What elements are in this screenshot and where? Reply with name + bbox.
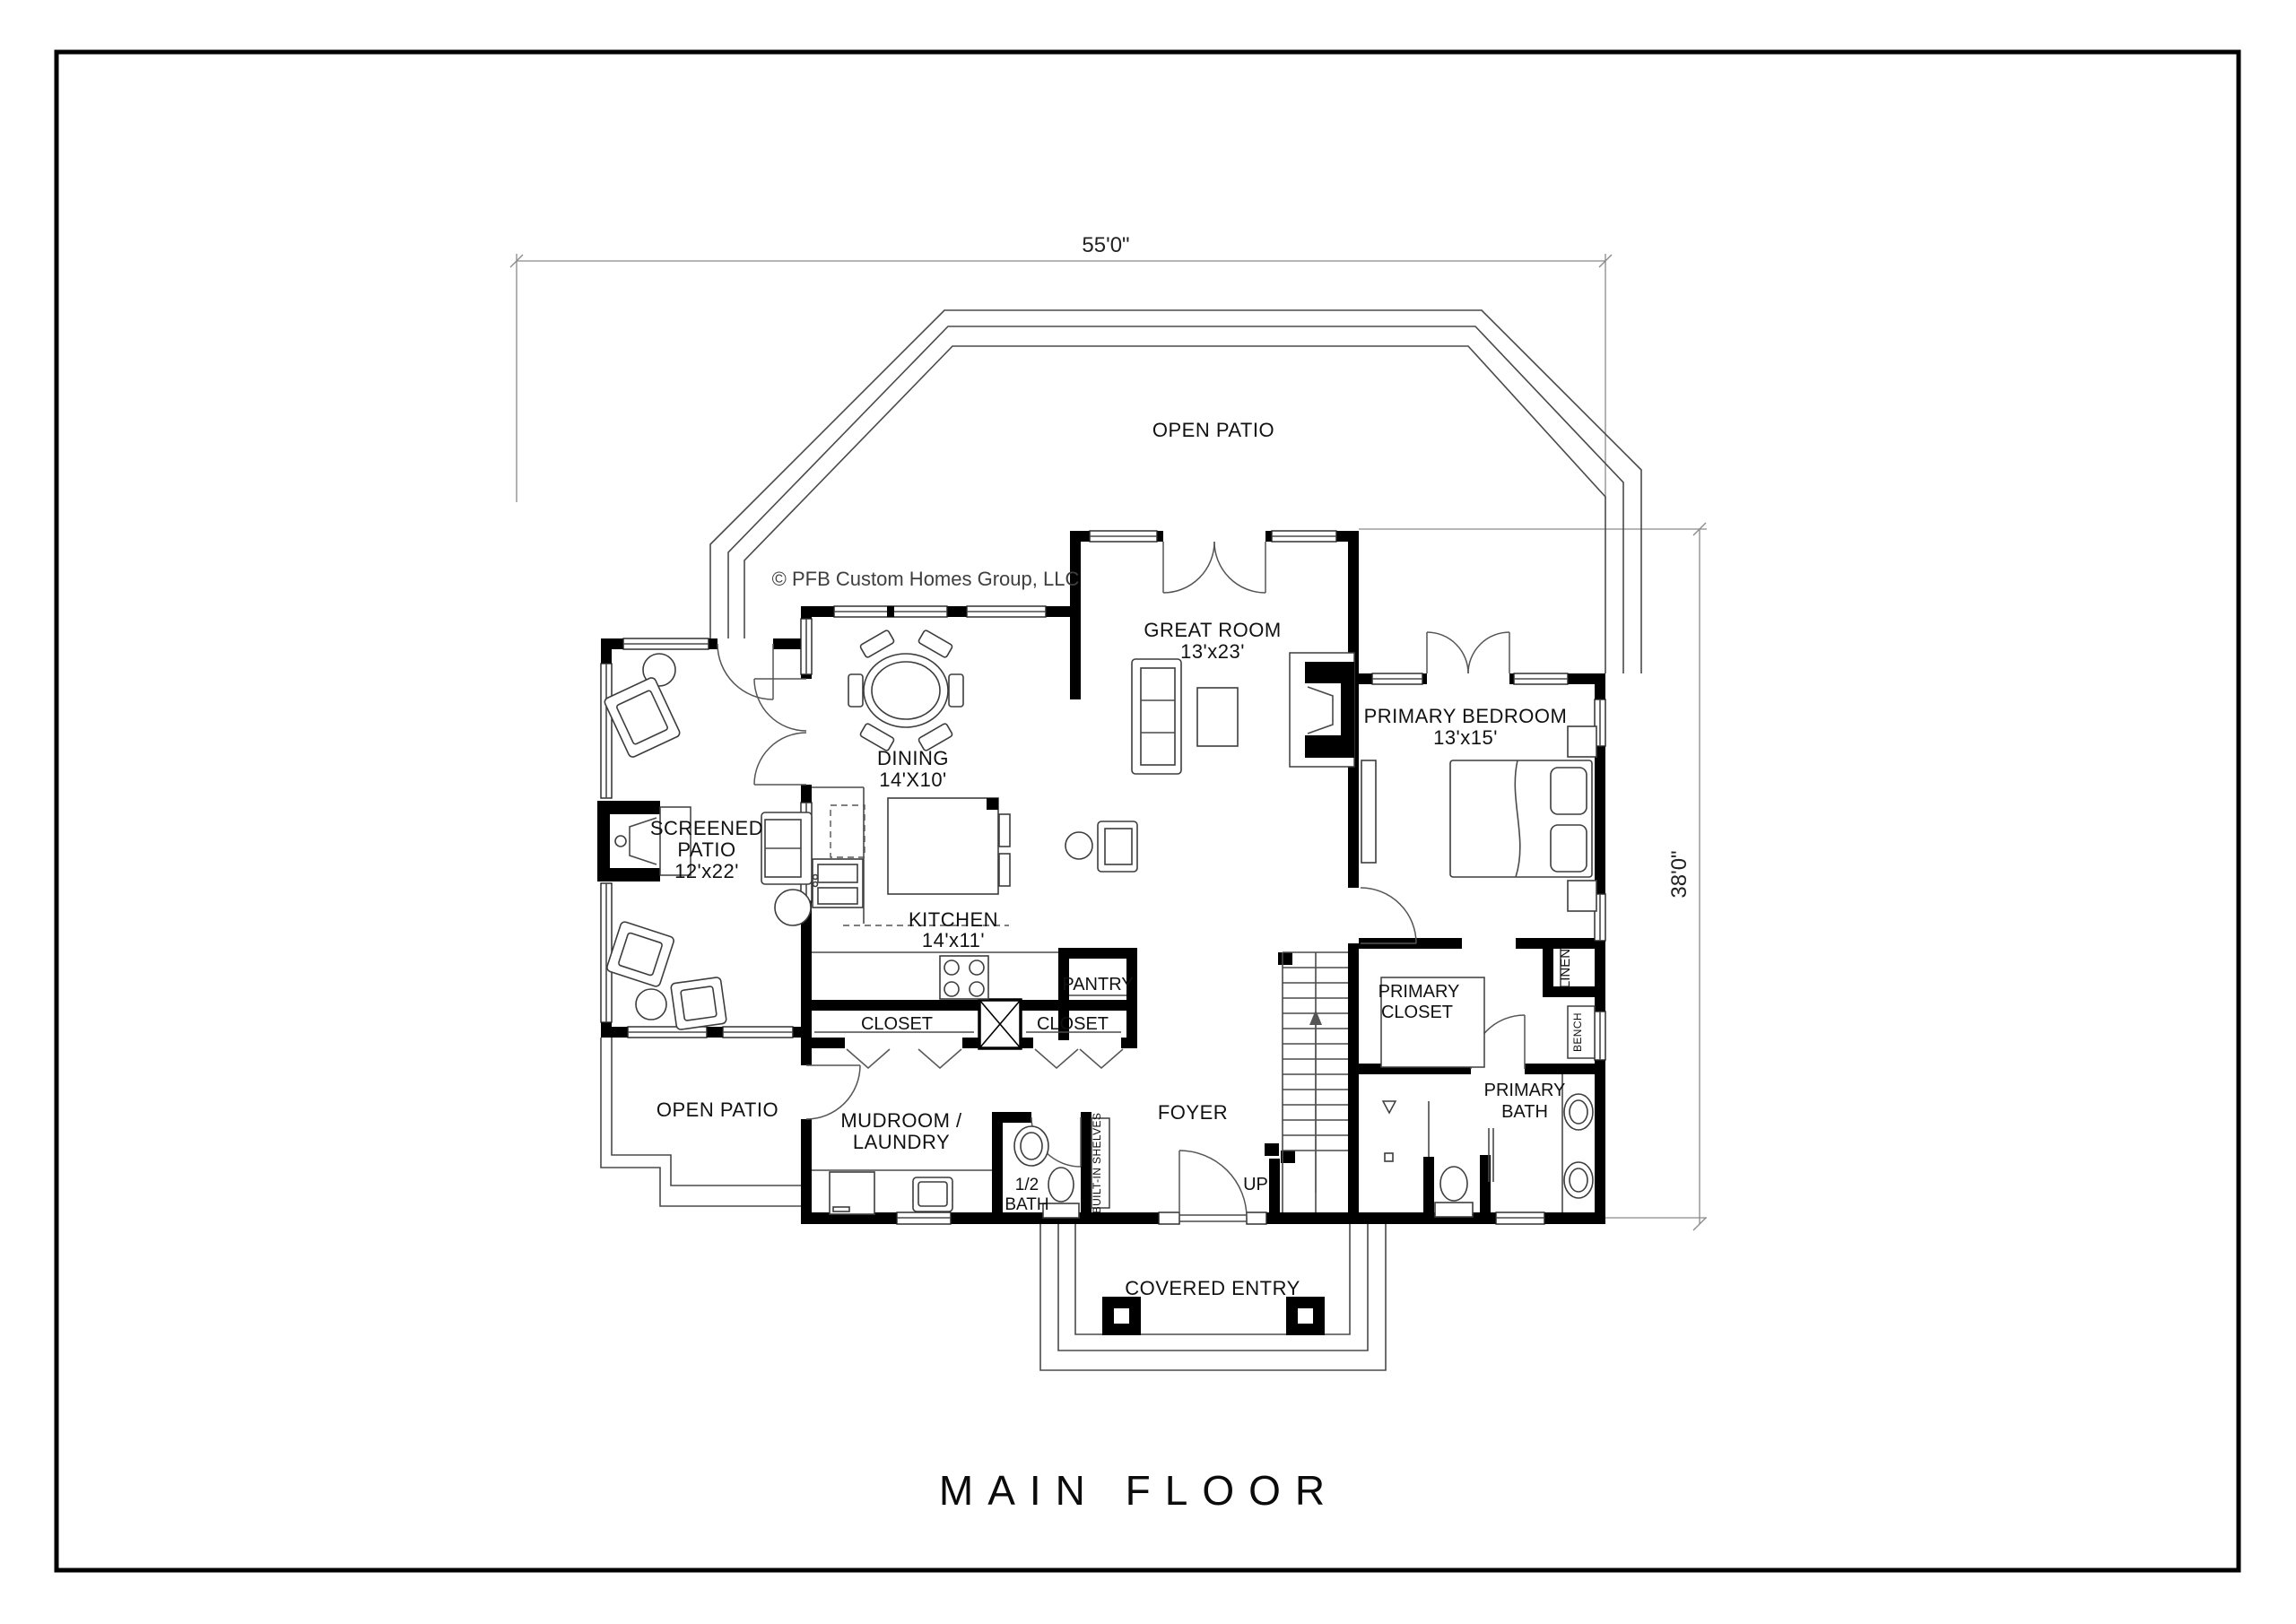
screened-patio-label-2: PATIO — [677, 838, 735, 861]
half-bath-label-2: BATH — [1004, 1195, 1048, 1214]
dining-label: DINING — [877, 747, 949, 769]
sheet-border — [57, 52, 2239, 1570]
built-in-shelves-label: BUILT-IN SHELVES — [1091, 1113, 1103, 1214]
labels: © PFB Custom Homes Group, LLC OPEN PATIO… — [650, 419, 1584, 1514]
half-bath-label-1: 1/2 — [1015, 1176, 1039, 1194]
sheet-title: MAIN FLOOR — [939, 1467, 1339, 1514]
stairs — [1283, 952, 1348, 1212]
depth-dimension: 38'0" — [1667, 850, 1692, 898]
chase-and-shelving — [814, 949, 1595, 1212]
primary-bedroom-size: 13'x15' — [1433, 726, 1498, 749]
great-room-size: 13'x23' — [1180, 640, 1245, 663]
primary-closet-label-2: CLOSET — [1381, 1003, 1453, 1022]
linen-label: LINEN — [1558, 949, 1573, 988]
closet-right-label: CLOSET — [1037, 1014, 1109, 1034]
primary-bath-label-1: PRIMARY — [1484, 1081, 1566, 1100]
screened-patio-size: 12'x22' — [674, 860, 739, 882]
great-room-label: GREAT ROOM — [1144, 619, 1281, 641]
kitchen-label: KITCHEN — [909, 908, 998, 931]
screened-patio-label-1: SCREENED — [650, 817, 763, 839]
foyer-label: FOYER — [1158, 1101, 1228, 1124]
lower-open-patio-outline — [601, 1038, 801, 1206]
copyright-note: © PFB Custom Homes Group, LLC — [772, 568, 1080, 590]
bench-label: BENCH — [1571, 1012, 1584, 1052]
pantry-label: PANTRY — [1062, 975, 1133, 994]
covered-entry-label: COVERED ENTRY — [1125, 1277, 1300, 1299]
closet-left-label: CLOSET — [861, 1014, 933, 1034]
dining-size: 14'X10' — [879, 769, 947, 791]
kitchen-size: 14'x11' — [922, 929, 985, 951]
up-label: UP — [1243, 1175, 1268, 1194]
primary-closet-label-1: PRIMARY — [1378, 982, 1460, 1002]
floor-plan-sheet: 55'0" 38'0" — [0, 0, 2296, 1624]
mudroom-label-1: MUDROOM / — [840, 1109, 962, 1132]
open-patio-lower-label: OPEN PATIO — [657, 1099, 778, 1121]
primary-bath-label-2: BATH — [1501, 1102, 1548, 1122]
open-patio-top-label: OPEN PATIO — [1152, 419, 1274, 441]
mudroom-label-2: LAUNDRY — [853, 1131, 950, 1153]
primary-bedroom-label: PRIMARY BEDROOM — [1364, 705, 1568, 727]
width-dimension: 55'0" — [1082, 233, 1129, 257]
floor-plan-drawing: 55'0" 38'0" — [0, 0, 2296, 1624]
